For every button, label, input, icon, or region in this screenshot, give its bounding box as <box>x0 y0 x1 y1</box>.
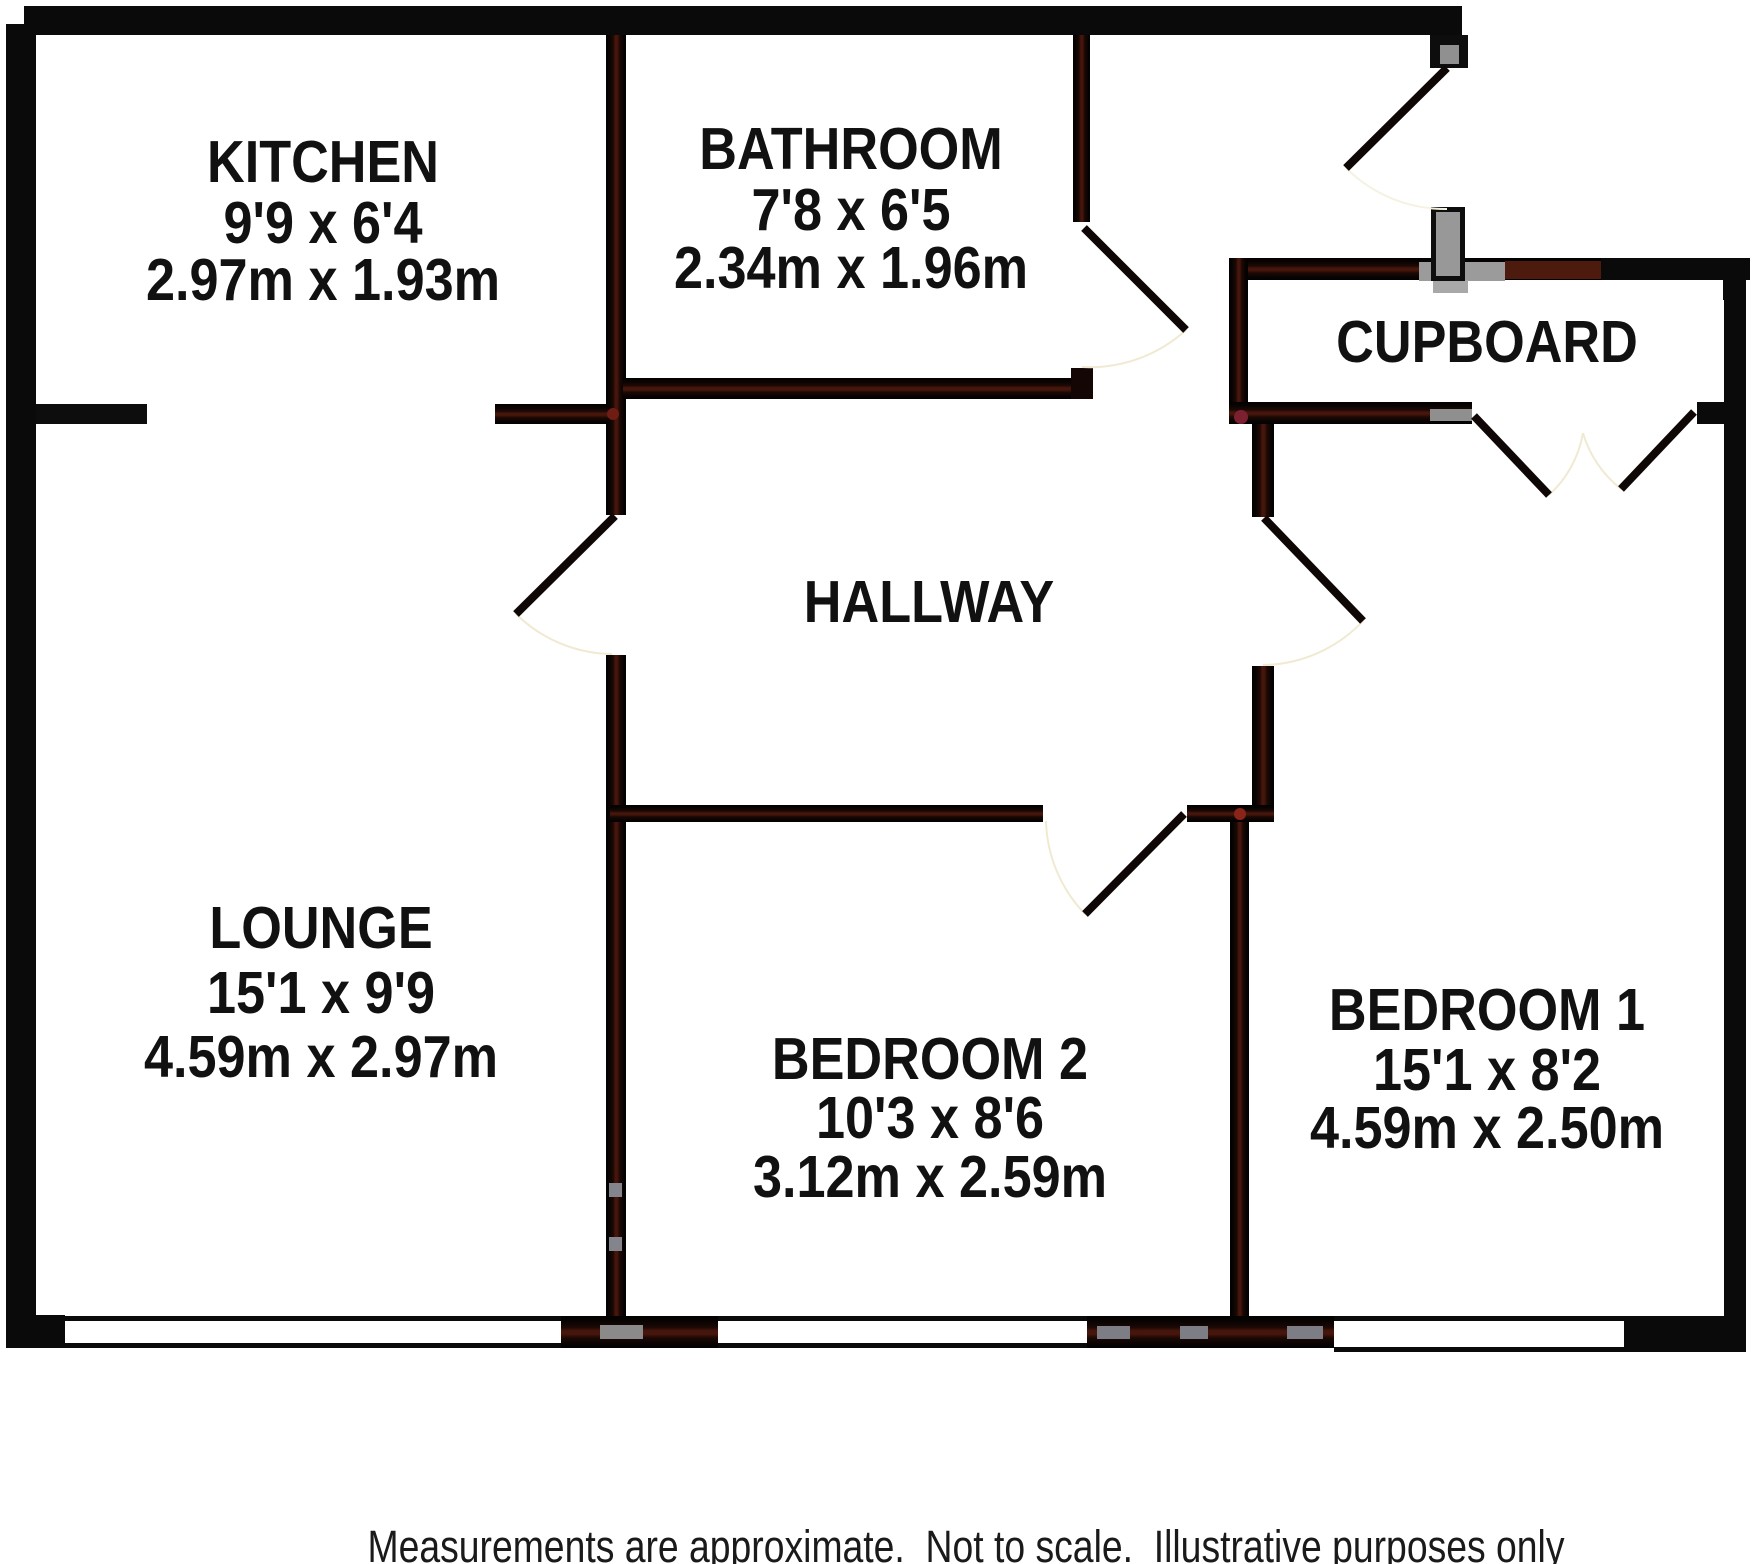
svg-text:4.59m x 2.50m: 4.59m x 2.50m <box>1310 1095 1664 1161</box>
svg-text:2.97m x 1.93m: 2.97m x 1.93m <box>146 247 500 313</box>
svg-text:BATHROOM: BATHROOM <box>699 116 1003 182</box>
svg-text:10'3 x 8'6: 10'3 x 8'6 <box>816 1085 1044 1151</box>
svg-text:CUPBOARD: CUPBOARD <box>1336 309 1638 375</box>
svg-text:HALLWAY: HALLWAY <box>804 569 1054 635</box>
svg-text:LOUNGE: LOUNGE <box>209 895 432 961</box>
svg-text:KITCHEN: KITCHEN <box>207 129 439 195</box>
svg-text:4.59m x 2.97m: 4.59m x 2.97m <box>144 1024 498 1090</box>
svg-text:BEDROOM 1: BEDROOM 1 <box>1329 977 1645 1043</box>
svg-text:3.12m x 2.59m: 3.12m x 2.59m <box>753 1144 1107 1210</box>
svg-text:9'9 x 6'4: 9'9 x 6'4 <box>223 190 422 256</box>
svg-text:Measurements are approximate.: Measurements are approximate. Not to sca… <box>368 1521 1565 1564</box>
svg-text:15'1 x 8'2: 15'1 x 8'2 <box>1373 1037 1601 1103</box>
svg-text:BEDROOM 2: BEDROOM 2 <box>772 1026 1088 1092</box>
svg-text:7'8 x 6'5: 7'8 x 6'5 <box>751 177 950 243</box>
svg-text:15'1 x 9'9: 15'1 x 9'9 <box>207 960 435 1026</box>
svg-text:2.34m x 1.96m: 2.34m x 1.96m <box>674 235 1028 301</box>
